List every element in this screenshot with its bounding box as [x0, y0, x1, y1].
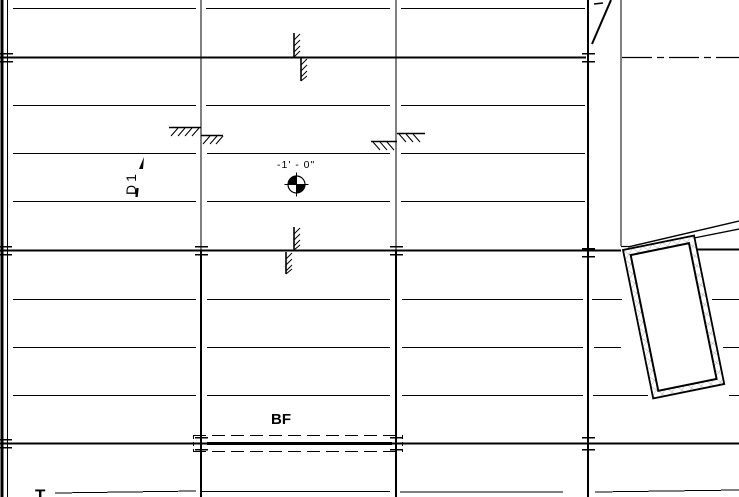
edge-break-hatch-bar — [294, 33, 300, 57]
step-hatch-symbol-grid-c — [371, 134, 425, 151]
joist-line[interactable] — [595, 490, 739, 492]
diagonal-line[interactable] — [592, 0, 611, 44]
joist-line[interactable] — [55, 491, 196, 493]
edge-break-hatch-bar — [294, 227, 300, 250]
step-hatch-symbol-grid-b — [169, 128, 223, 145]
roof-edge-lines[interactable] — [592, 0, 739, 247]
edge-break-hatch-bar — [286, 252, 292, 274]
spot-elevation-target[interactable]: -1' - 0" — [277, 159, 315, 197]
deck-span-tag[interactable]: D1 — [123, 157, 144, 197]
diagonal-tick — [594, 3, 603, 4]
edge-break-hatch-bar — [301, 58, 307, 81]
span-arrow-top — [139, 157, 144, 169]
span-tick-bottom — [137, 188, 138, 197]
target-quadrant-tl — [288, 176, 297, 185]
shaft-wall-rectangle[interactable] — [623, 236, 724, 399]
drawing-canvas[interactable]: -1' - 0" D1 BF T — [0, 0, 739, 497]
target-quadrant-br — [297, 185, 306, 194]
grid-lines[interactable] — [2, 0, 621, 497]
section-marker-label[interactable]: T — [35, 486, 46, 497]
spot-elevation-label: -1' - 0" — [277, 159, 315, 171]
beam-tag-label[interactable]: BF — [271, 411, 291, 428]
